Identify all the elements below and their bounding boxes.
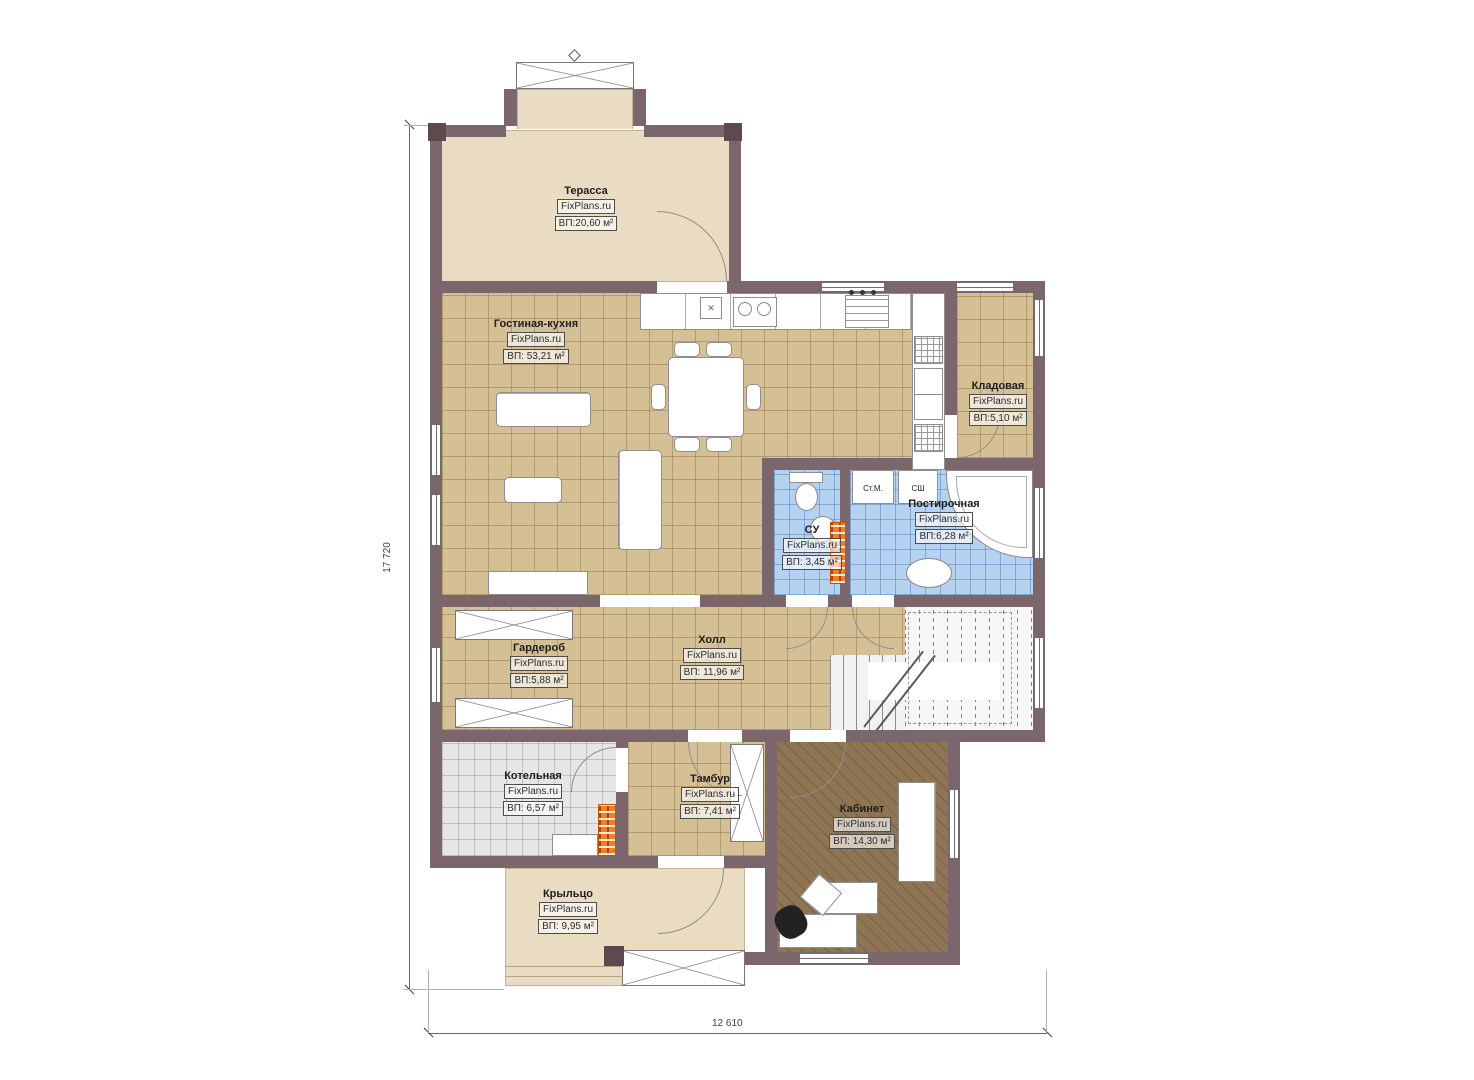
brand-box: FixPlans.ru (557, 199, 615, 214)
window (430, 648, 442, 702)
kitchen-hood: ✕ (700, 297, 722, 319)
dimension-extension (428, 970, 429, 1033)
terrace-bump-wall-left (504, 89, 517, 126)
dining-chair (651, 384, 666, 410)
room-label-porch: Крыльцо FixPlans.ru ВП: 9,95 м² (524, 888, 612, 934)
window (430, 425, 442, 475)
wardrobe-unit (455, 610, 573, 640)
wall-office-left (765, 742, 777, 965)
wall-hall-lower (846, 730, 948, 742)
dining-chair (674, 342, 700, 357)
area-box: ВП:5,88 м² (510, 673, 567, 688)
dining-chair (746, 384, 761, 410)
wall-living-hall (430, 595, 600, 607)
room-label-wardrobe: Гардероб FixPlans.ru ВП:5,88 м² (495, 642, 583, 688)
stove-burner (871, 290, 876, 295)
boiler-unit (598, 804, 616, 856)
room-name: Терасса (541, 185, 631, 197)
wall-hall-lower (742, 730, 790, 742)
room-label-hall: Холл FixPlans.ru ВП: 11,96 м² (668, 634, 756, 680)
brand-box: FixPlans.ru (510, 656, 568, 671)
floor-plan: 17 720 12 610 (0, 0, 1474, 1080)
dryer-label: СШ (898, 484, 938, 493)
dimension-width-label: 12 610 (712, 1018, 743, 1029)
brand-box: FixPlans.ru (507, 332, 565, 347)
room-name: Крыльцо (524, 888, 612, 900)
window (1033, 638, 1045, 708)
terrace-corner-post (724, 123, 742, 141)
window (1033, 300, 1045, 356)
dimension-extension (1046, 970, 1047, 1033)
room-name: Гостиная-кухня (481, 318, 591, 330)
fridge (914, 368, 943, 420)
toilet-bowl (795, 483, 818, 511)
wall-bath-bottom (762, 595, 786, 607)
sofa-horizontal (496, 392, 591, 427)
room-name: Постирочная (898, 498, 990, 510)
appliance-vent (914, 336, 943, 364)
terrace-bump-wall-right (633, 89, 646, 126)
room-label-vestibule: Тамбур FixPlans.ru ВП: 7,41 м² (666, 773, 754, 819)
wall-bath-top (762, 458, 1045, 470)
window (800, 952, 868, 965)
wall-bath-bottom (894, 595, 1045, 607)
porch-step-line (505, 966, 625, 967)
area-box: ВП: 6,57 м² (503, 801, 563, 816)
room-name: СУ (777, 524, 847, 536)
dining-table (668, 357, 744, 437)
brand-box: FixPlans.ru (833, 817, 891, 832)
toilet-tank (789, 472, 823, 483)
room-label-bathroom: СУ FixPlans.ru ВП: 3,45 м² (777, 524, 847, 570)
sofa-vertical (618, 450, 662, 550)
vestibule-bottom-wall (616, 856, 658, 868)
area-box: ВП:20,60 м² (555, 216, 618, 231)
wall-left (430, 281, 442, 868)
area-box: ВП: 3,45 м² (782, 555, 842, 570)
window (430, 495, 442, 545)
wall-top (727, 281, 822, 293)
dimension-extension (404, 989, 504, 990)
stove-burner (860, 290, 865, 295)
wall-step (948, 730, 1045, 742)
room-label-office: Кабинет FixPlans.ru ВП: 14,30 м² (818, 803, 906, 849)
dimension-line-horizontal (428, 1033, 1047, 1034)
area-box: ВП:6,28 м² (915, 529, 972, 544)
wall-hall-lower (430, 730, 688, 742)
dining-chair (706, 437, 732, 452)
porch-step-line (505, 976, 625, 977)
room-name: Тамбур (666, 773, 754, 785)
brand-box: FixPlans.ru (783, 538, 841, 553)
room-label-boiler: Котельная FixPlans.ru ВП: 6,57 м² (489, 770, 577, 816)
room-name: Кабинет (818, 803, 906, 815)
boiler-equipment (552, 834, 598, 856)
kitchen-stove (845, 295, 889, 328)
brand-box: FixPlans.ru (915, 512, 973, 527)
room-label-pantry: Кладовая FixPlans.ru ВП:5,10 м² (953, 380, 1043, 426)
wall-top (430, 281, 657, 293)
terrace-wall-left (430, 125, 442, 281)
area-box: ВП: 53,21 м² (503, 349, 568, 364)
wardrobe-unit (455, 698, 573, 728)
room-name: Гардероб (495, 642, 583, 654)
terrace-corner-post (428, 123, 446, 141)
wall-top (884, 281, 957, 293)
sink-bowl (738, 302, 752, 316)
brand-box: FixPlans.ru (539, 902, 597, 917)
marker-diamond (568, 49, 581, 62)
laundry-sink (906, 558, 952, 588)
brand-box: FixPlans.ru (683, 648, 741, 663)
area-box: ВП:5,10 м² (969, 411, 1026, 426)
dimension-extension (404, 125, 429, 126)
room-label-living-kitchen: Гостиная-кухня FixPlans.ru ВП: 53,21 м² (481, 318, 591, 364)
washing-machine-label: Ст.М. (852, 484, 894, 493)
tv-bench (488, 571, 588, 595)
window (1033, 488, 1045, 558)
wall-boiler-vestibule (616, 742, 628, 748)
stove-burner (849, 290, 854, 295)
area-box: ВП: 9,95 м² (538, 919, 598, 934)
sink-bowl (757, 302, 771, 316)
room-label-laundry: Постирочная FixPlans.ru ВП:6,28 м² (898, 498, 990, 544)
wall-boiler-vestibule (616, 792, 628, 856)
wall-bath-left (762, 458, 774, 607)
terrace-bump-floor (517, 89, 633, 129)
room-label-terrace: Терасса FixPlans.ru ВП:20,60 м² (541, 185, 631, 231)
brand-box: FixPlans.ru (681, 787, 739, 802)
window (948, 790, 960, 858)
brand-box: FixPlans.ru (504, 784, 562, 799)
dining-chair (674, 437, 700, 452)
window (957, 281, 1013, 293)
porch-post (604, 946, 624, 966)
dimension-line-vertical (409, 125, 410, 990)
terrace-wall-right (729, 125, 741, 281)
coffee-table (504, 477, 562, 503)
brand-box: FixPlans.ru (969, 394, 1027, 409)
wall-bath-bottom (828, 595, 852, 607)
room-name: Котельная (489, 770, 577, 782)
room-name: Кладовая (953, 380, 1043, 392)
area-box: ВП: 14,30 м² (829, 834, 894, 849)
room-name: Холл (668, 634, 756, 646)
porch-deck-strip (622, 950, 745, 986)
area-box: ВП: 11,96 м² (680, 665, 745, 680)
appliance-oven (914, 424, 943, 452)
dining-chair (706, 342, 732, 357)
wall-bottom-left (430, 856, 630, 868)
area-box: ВП: 7,41 м² (680, 804, 740, 819)
dimension-height-label: 17 720 (382, 542, 393, 573)
terrace-deck-strip (516, 62, 634, 89)
